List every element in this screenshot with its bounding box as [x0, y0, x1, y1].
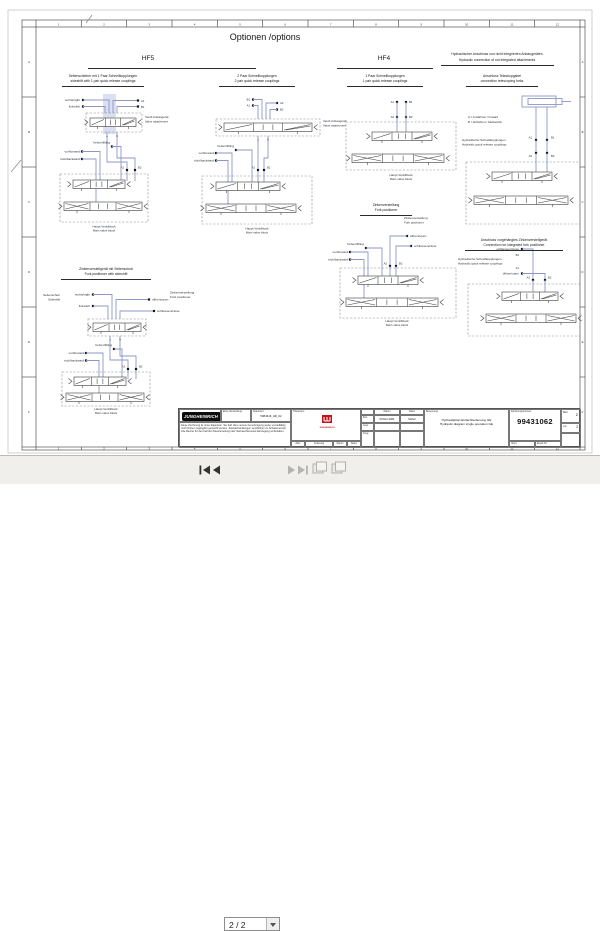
column-header-hyd-de: Hydraulischer Anschluss von nicht integr…	[407, 53, 587, 56]
von-cell: von 2	[561, 423, 581, 433]
frame-column-number: 5	[239, 22, 241, 26]
frame-row-letter: D	[28, 270, 30, 274]
schematic-label: A1	[391, 100, 395, 104]
schematic-label: A1	[141, 99, 145, 103]
schematic-label: rechts/right	[75, 293, 90, 297]
section-header-telescopic-en: connection telescoping forks	[442, 80, 562, 83]
schematic-label: Seitenschub	[43, 293, 60, 297]
von-value: 2	[576, 426, 578, 430]
section-header-ext-forkpos-de: Anschluss vorgehängtes Zinkenverstellger…	[444, 239, 584, 242]
schematic-label: Main valve block	[95, 411, 118, 415]
schematic-label: Hydraulische Schnellkupplungen	[462, 138, 506, 142]
schematic-label: B2	[551, 154, 555, 158]
urspr-label: Urspr.	[509, 441, 535, 448]
underline-rule	[441, 65, 554, 66]
frame-column-number: 9	[421, 22, 423, 26]
schematic-telescopic-forks: A = Ausfahren / forwardB = Einfahren / b…	[462, 96, 580, 224]
drawing-number: 99431062	[510, 418, 560, 426]
schematic-label: schliessen/close	[414, 244, 437, 248]
sign-gepr-label: Gepr.	[361, 423, 374, 431]
next-page-button[interactable]	[288, 466, 295, 475]
column-header-hf5: HF5	[118, 56, 178, 63]
schematic-label: A2	[529, 154, 533, 158]
schematic-hf4-main: A1B1A2B2Haupt VentilblockMain valve bloc…	[346, 100, 456, 181]
frame-column-number: 4	[194, 22, 196, 26]
schematic-label: Hydraulic quick release couplings	[458, 262, 503, 266]
schematic-label: rechts/right	[65, 98, 80, 102]
frame-row-letter: A	[28, 60, 30, 64]
single-page-layout-button[interactable]	[313, 462, 327, 473]
section-header-forkpos-de: Zinkenverstellung	[326, 204, 446, 207]
first-page-button[interactable]	[200, 466, 211, 475]
page-title: Optionen /options	[165, 33, 365, 42]
underline-rule	[88, 68, 256, 69]
schematic-label: B1	[551, 136, 555, 140]
underline-rule	[61, 279, 151, 280]
column-header-hf4: HF4	[354, 56, 414, 63]
previous-page-button[interactable]	[213, 466, 220, 475]
schematic-label: Hydraulische Schnellkupplungen	[458, 257, 502, 261]
frame-column-number: 11	[511, 22, 514, 26]
frame-column-number: 3	[149, 22, 151, 26]
schematic-label: B2	[267, 166, 271, 170]
schematic-label: B2	[399, 262, 403, 266]
section-header-forkpos-side-de: Zinkenverstellgerät mit Seitenschub	[46, 268, 166, 271]
blatt-spare-cell	[561, 433, 581, 448]
frame-column-number: 7	[330, 22, 332, 26]
schematic-label: Zinkenverstellung	[170, 291, 195, 295]
schematic-label: B2	[139, 365, 143, 369]
schematic-label: Main valve block	[386, 323, 409, 327]
section-header-two-pair-de: 2 Paar Schnellkupplungen	[197, 75, 317, 78]
disclaimer-cell: Diese Zeichnung ist unser Eigentum. Sie …	[179, 422, 291, 448]
schematic-label: B1	[141, 105, 145, 109]
sign-erst-datum: 06.Dez.2004	[374, 415, 400, 423]
last-page-button[interactable]	[298, 466, 308, 475]
schematic-label: heben/lifting	[347, 242, 364, 246]
schematic-label: öffnen/open	[503, 272, 520, 276]
schematic-label: A2	[527, 276, 531, 280]
sign-freig-name	[400, 431, 424, 448]
section-header-two-pair-en: 2 pair quick release couplings	[197, 80, 317, 83]
sign-gepr-datum	[374, 423, 400, 431]
schematic-label: Fork positioner	[170, 295, 190, 299]
frame-column-number: 1	[58, 22, 60, 26]
schematic-label: A1	[247, 104, 251, 108]
schematic-hf4-forkpos: ZinkenverstellungFork positioneröffnen/o…	[328, 216, 456, 327]
document-viewer-window: { "colors": { "schematic_line": "#8e96c6…	[0, 0, 600, 483]
drawing-number-cell: Zeichnungsnummer 99431062	[509, 409, 561, 441]
schematic-label: B2	[280, 108, 284, 112]
frame-row-letter: B	[28, 130, 30, 134]
schematic-label: Valve attachment	[323, 124, 346, 128]
rev-datum-label: Datum	[333, 441, 347, 448]
sign-freig-datum	[374, 431, 400, 448]
schematic-label: Main valve block	[93, 229, 116, 233]
schematic-label: B1	[409, 100, 413, 104]
schematic-label: schliessen/close	[157, 309, 180, 313]
schematic-label: Ventil Anbaugerät	[145, 115, 169, 119]
schematic-label: B1	[247, 98, 251, 102]
schematic-label: vor/forward	[65, 150, 81, 154]
underline-rule	[62, 86, 144, 87]
sign-erst-name: Stuber	[400, 415, 424, 423]
sign-erst-label: Erst.	[361, 415, 374, 423]
schematic-label: heben/lifting	[217, 144, 234, 148]
schematic-ext-forkpos: schliessen/closeB1A1öffnen/openHydraulis…	[458, 247, 582, 336]
title-block: JUNGHEINRICH Erste Verwendung Dokument 5…	[178, 408, 580, 447]
section-header-forkpos-side-en: Fork positioner with sideshift	[46, 273, 166, 276]
chevron-down-icon	[270, 923, 276, 927]
rev-name-label: Name	[347, 441, 361, 448]
combo-dropdown[interactable]	[266, 918, 279, 930]
rev-aenderung-label: Änderung	[305, 441, 333, 448]
frame-row-letter: E	[582, 340, 584, 344]
viewer-toolbar: 2 / 2	[0, 455, 600, 484]
schematic-label: Zinkenverstellung	[404, 216, 428, 220]
section-header-telescopic-de: Anschluss Teleskopgabel	[442, 75, 562, 78]
section-header-sideshift-de: Seitenschieber mit 1 Paar Schnellkupplun…	[43, 75, 163, 78]
schematic-label: Valve attachment	[145, 120, 168, 124]
blatt-value: 2	[576, 413, 578, 417]
frame-row-letter: B	[582, 130, 584, 134]
section-header-one-pair-en: 1 pair quick release couplings	[325, 80, 445, 83]
brand-mark-text: JUNGHEINRICH	[306, 427, 348, 429]
frame-column-number: 6	[285, 22, 287, 26]
document-value: 5984316_HD_02	[252, 415, 290, 418]
tolerance-label: Toleranzen	[292, 410, 360, 414]
first-use-label: Erste Verwendung	[221, 409, 251, 422]
schematic-label: B2	[138, 166, 142, 170]
schematic-label: öffnen/open	[152, 298, 169, 302]
document-cell: Dokument 5984316_HD_02	[251, 409, 291, 422]
schematic-label: links/left	[79, 304, 90, 308]
document-label: Dokument	[252, 410, 290, 414]
section-header-one-pair-de: 1 Paar Schnellkupplungen	[325, 75, 445, 78]
benennung-cell: Benennung Hydraulikplan Einfachbedienung…	[424, 409, 509, 448]
page-indicator: 2 / 2	[229, 919, 246, 931]
schematic-label: Main valve block	[390, 177, 413, 181]
underline-rule	[219, 86, 295, 87]
schematic-label: heben/lifting	[95, 343, 112, 347]
schematic-two-pair: B1A1A2B2Ventil AnbaugerätValve attachmen…	[194, 98, 347, 235]
schematic-label: rück/backward	[64, 359, 84, 363]
frame-column-number: 8	[375, 22, 377, 26]
continuous-layout-button[interactable]	[332, 462, 346, 473]
schematic-hf5-sideshift: rechts/rightlinks/leftA1B1Ventil Anbauge…	[59, 94, 169, 233]
underline-rule	[337, 68, 433, 69]
schematic-label: Sideshift	[48, 298, 60, 302]
schematic-label: A2	[391, 115, 395, 119]
frame-column-number: 12	[556, 22, 560, 26]
frame-row-letter: C	[28, 200, 30, 204]
schematic-label: A1	[529, 136, 533, 140]
benennung-en: Hydraulic diagram single operation GE	[425, 423, 508, 426]
schematic-label: heben/lifting	[93, 141, 110, 145]
benennung-label: Benennung	[425, 410, 508, 414]
schematic-label: A = Ausfahren / forward	[468, 115, 499, 119]
benennung-de: Hydraulikplan Einfachbedienung GE	[425, 419, 508, 422]
frame-column-number: 2	[103, 22, 105, 26]
underline-rule	[466, 86, 538, 87]
jungheinrich-logo: JUNGHEINRICH	[182, 412, 221, 422]
von-label: von	[562, 425, 568, 429]
column-header-hyd-en: Hydraulic connection of not integrated a…	[407, 59, 587, 62]
underline-rule	[360, 215, 412, 216]
underline-rule	[347, 86, 423, 87]
page-number-combobox[interactable]: 2 / 2	[224, 917, 280, 931]
frame-row-letter: D	[581, 270, 583, 274]
schematic-label: vor/forward	[199, 151, 215, 155]
schematic-label: B1	[516, 253, 520, 257]
disclaimer-text: Diese Zeichnung ist unser Eigentum. Sie …	[180, 423, 290, 435]
schematic-label: öffnen/open	[410, 234, 427, 238]
tolerance-cell: Toleranzen JUNGHEINRICH	[291, 409, 361, 441]
frame-row-letter: F	[28, 410, 30, 414]
schematic-label: Fork positioner	[404, 221, 424, 225]
schematic-label: rück/backward	[60, 157, 80, 161]
schematic-label: B2	[409, 115, 413, 119]
schematic-label: vor/forward	[69, 351, 85, 355]
schematic-label: Main valve block	[246, 231, 269, 235]
rev-zust-label: Zust.	[291, 441, 305, 448]
underline-rule	[465, 250, 563, 251]
schematic-label: A1	[516, 266, 520, 270]
schematic-label: vor/forward	[333, 250, 349, 254]
blatt-cell: Blatt 2	[561, 409, 581, 423]
schematic-label: rück/backward	[194, 159, 214, 163]
schematic-label: A2	[384, 262, 388, 266]
ersatz-label: Ersatz für	[535, 441, 561, 448]
schematic-label: Hydraulic quick release couplings	[462, 143, 507, 147]
section-header-sideshift-en: sideshift with 1 pair quick release coup…	[43, 80, 163, 83]
frame-row-letter: F	[582, 410, 584, 414]
section-header-ext-forkpos-en: Connection not integrated fork positione…	[444, 244, 584, 247]
sign-freig-label: Freig.	[361, 431, 374, 448]
schematic-label: B2	[548, 276, 552, 280]
section-header-forkpos-en: Fork positioner	[326, 209, 446, 212]
schematic-hf5-forkpos-sideshift: SeitenschubSideshiftrechts/rightlinks/le…	[43, 291, 195, 416]
frame-column-number: 10	[465, 22, 469, 26]
schematic-label: links/left	[69, 105, 80, 109]
blatt-label: Blatt	[562, 411, 569, 415]
schematic-label: A2	[280, 101, 284, 105]
drawing-number-label: Zeichnungsnummer	[510, 410, 560, 414]
logo-cell: JUNGHEINRICH	[179, 409, 221, 422]
schematic-label: rück/backward	[328, 258, 348, 262]
sign-gepr-name	[400, 423, 424, 431]
schematic-label: B = Einfahren / backwards	[468, 120, 502, 124]
frame-row-letter: C	[581, 200, 583, 204]
frame-row-letter: E	[28, 340, 30, 344]
brand-anchor-icon	[320, 415, 334, 426]
schematic-label: Ventil Anbaugerät	[323, 119, 347, 123]
